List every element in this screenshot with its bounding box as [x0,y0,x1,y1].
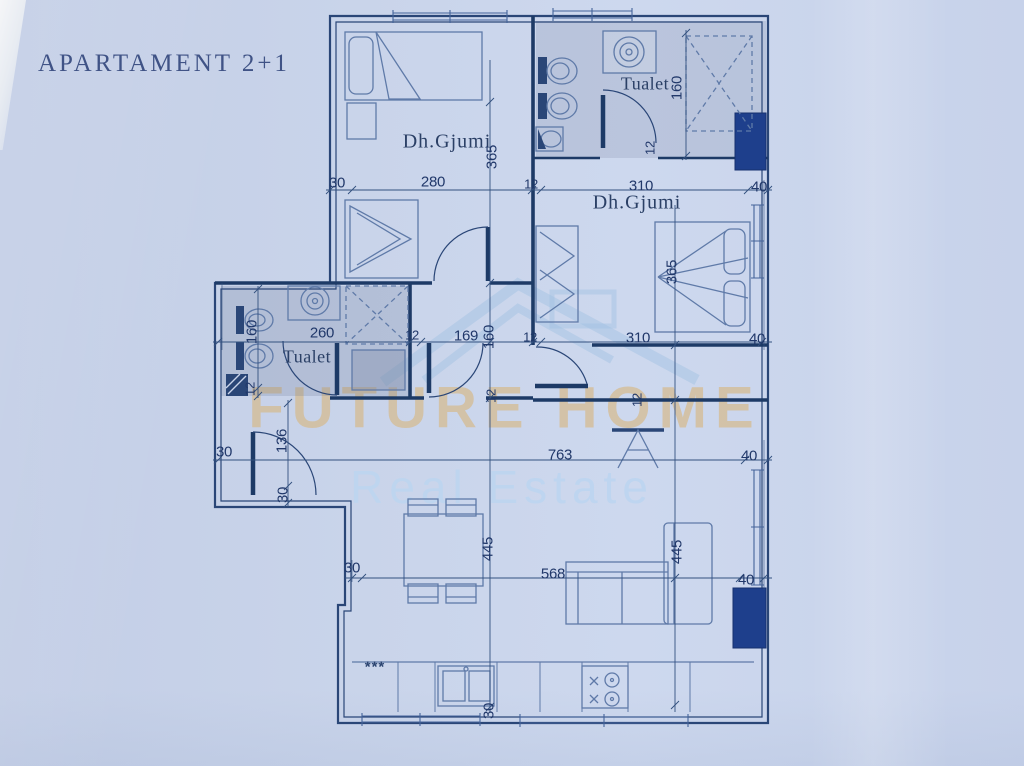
floor-tints [221,21,766,396]
wc-tank [538,57,547,84]
column-top-right [735,113,766,170]
column-bottom-right [733,588,766,648]
floor-plan-drawing [0,0,1024,766]
pillow [349,37,373,94]
pillow [724,229,745,274]
bidet-tank [538,93,547,119]
window-toilet-top [553,8,632,21]
pillow [724,281,745,326]
wardrobe-right [536,226,578,322]
floorplan-photo: APARTAMENT 2+1 FUTURE HOME Real Estate [0,0,1024,766]
columns [733,113,766,648]
furniture-bedroom-left [345,32,482,278]
tv-stand [612,430,664,468]
dining-table [404,514,483,586]
furniture-living [352,499,754,712]
wardrobe-left [345,200,418,278]
sofa [566,562,668,624]
sofa-chaise [664,523,712,624]
window-kitchen-bottom [362,713,688,727]
blanket-fan [658,231,748,325]
furniture-bedroom-right [536,222,750,332]
nightstand [347,103,376,139]
kitchen-sink [438,666,494,706]
blanket-fold [376,32,420,99]
bed-right [655,222,750,332]
